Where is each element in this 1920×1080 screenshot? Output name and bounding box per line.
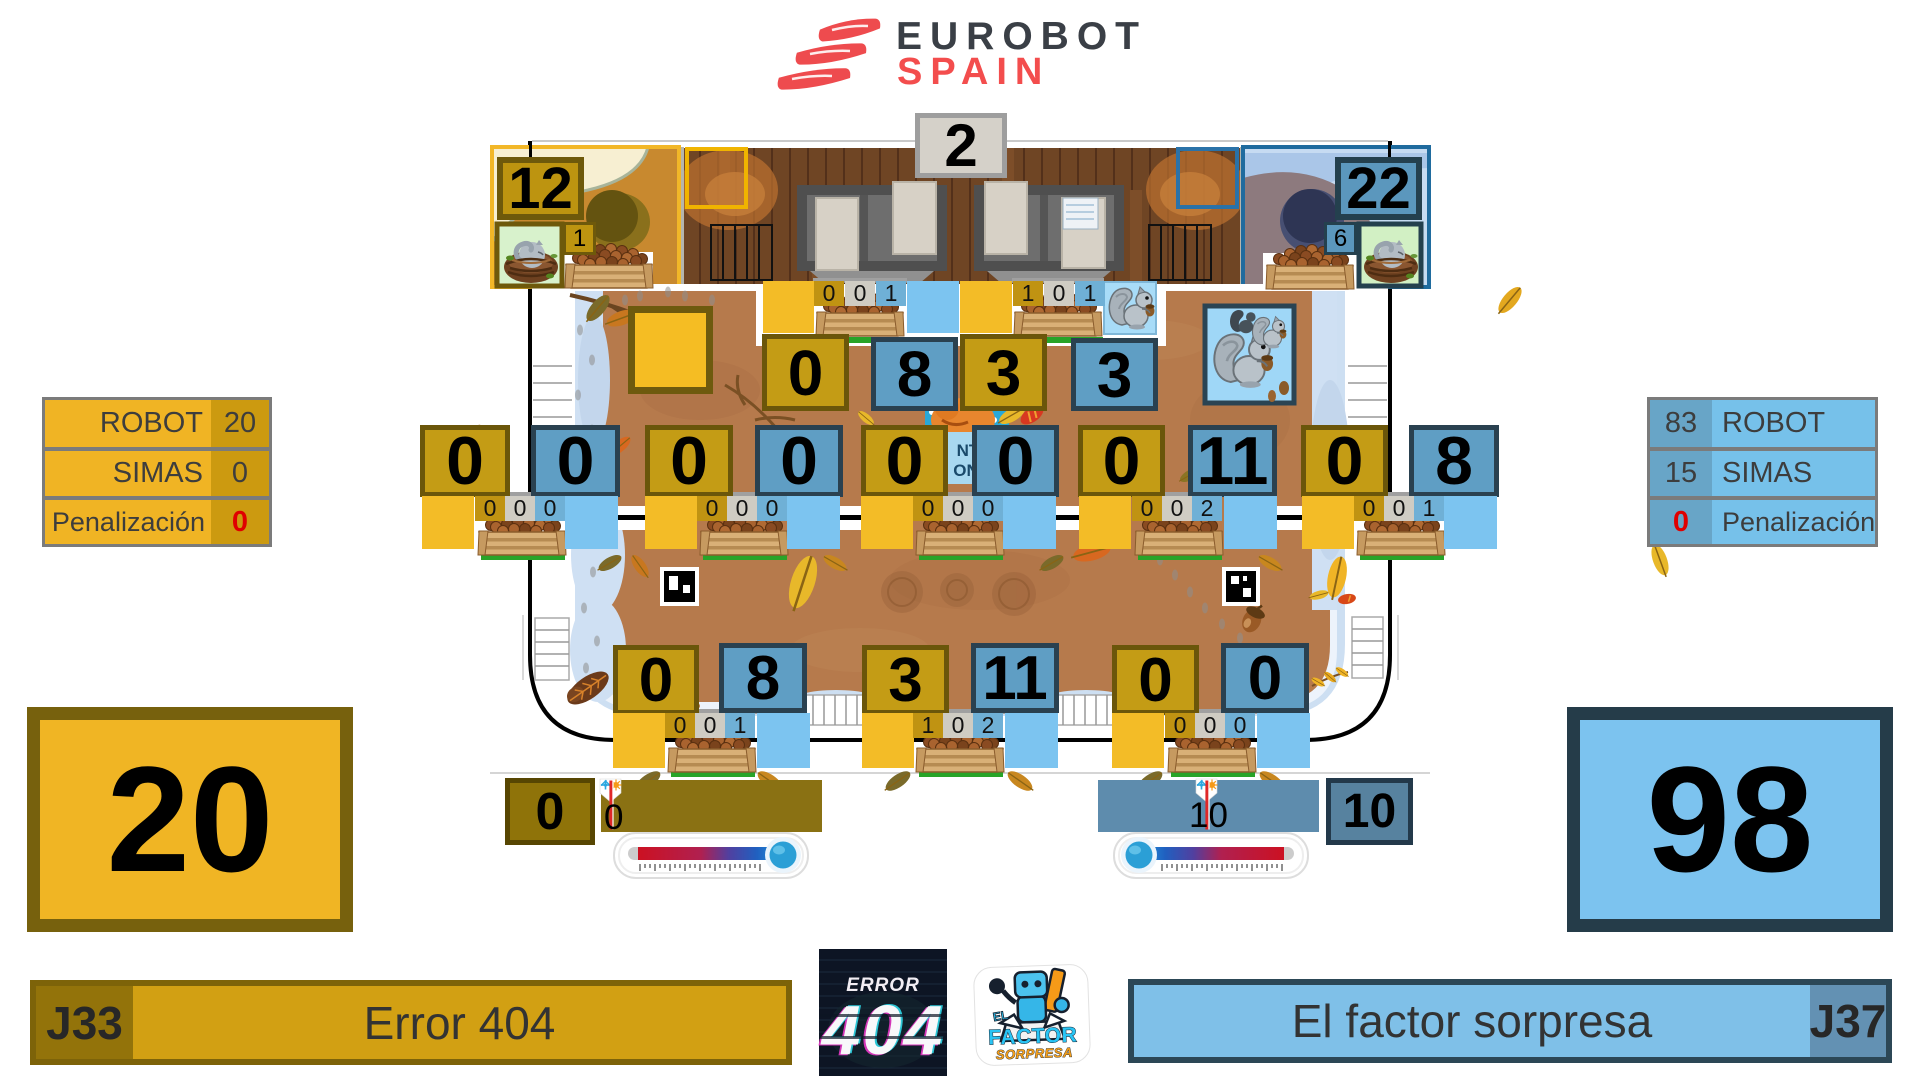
svg-text:404: 404: [820, 991, 945, 1069]
svg-text:EL: EL: [992, 1008, 1010, 1024]
svg-text:SORPRESA: SORPRESA: [996, 1045, 1073, 1063]
